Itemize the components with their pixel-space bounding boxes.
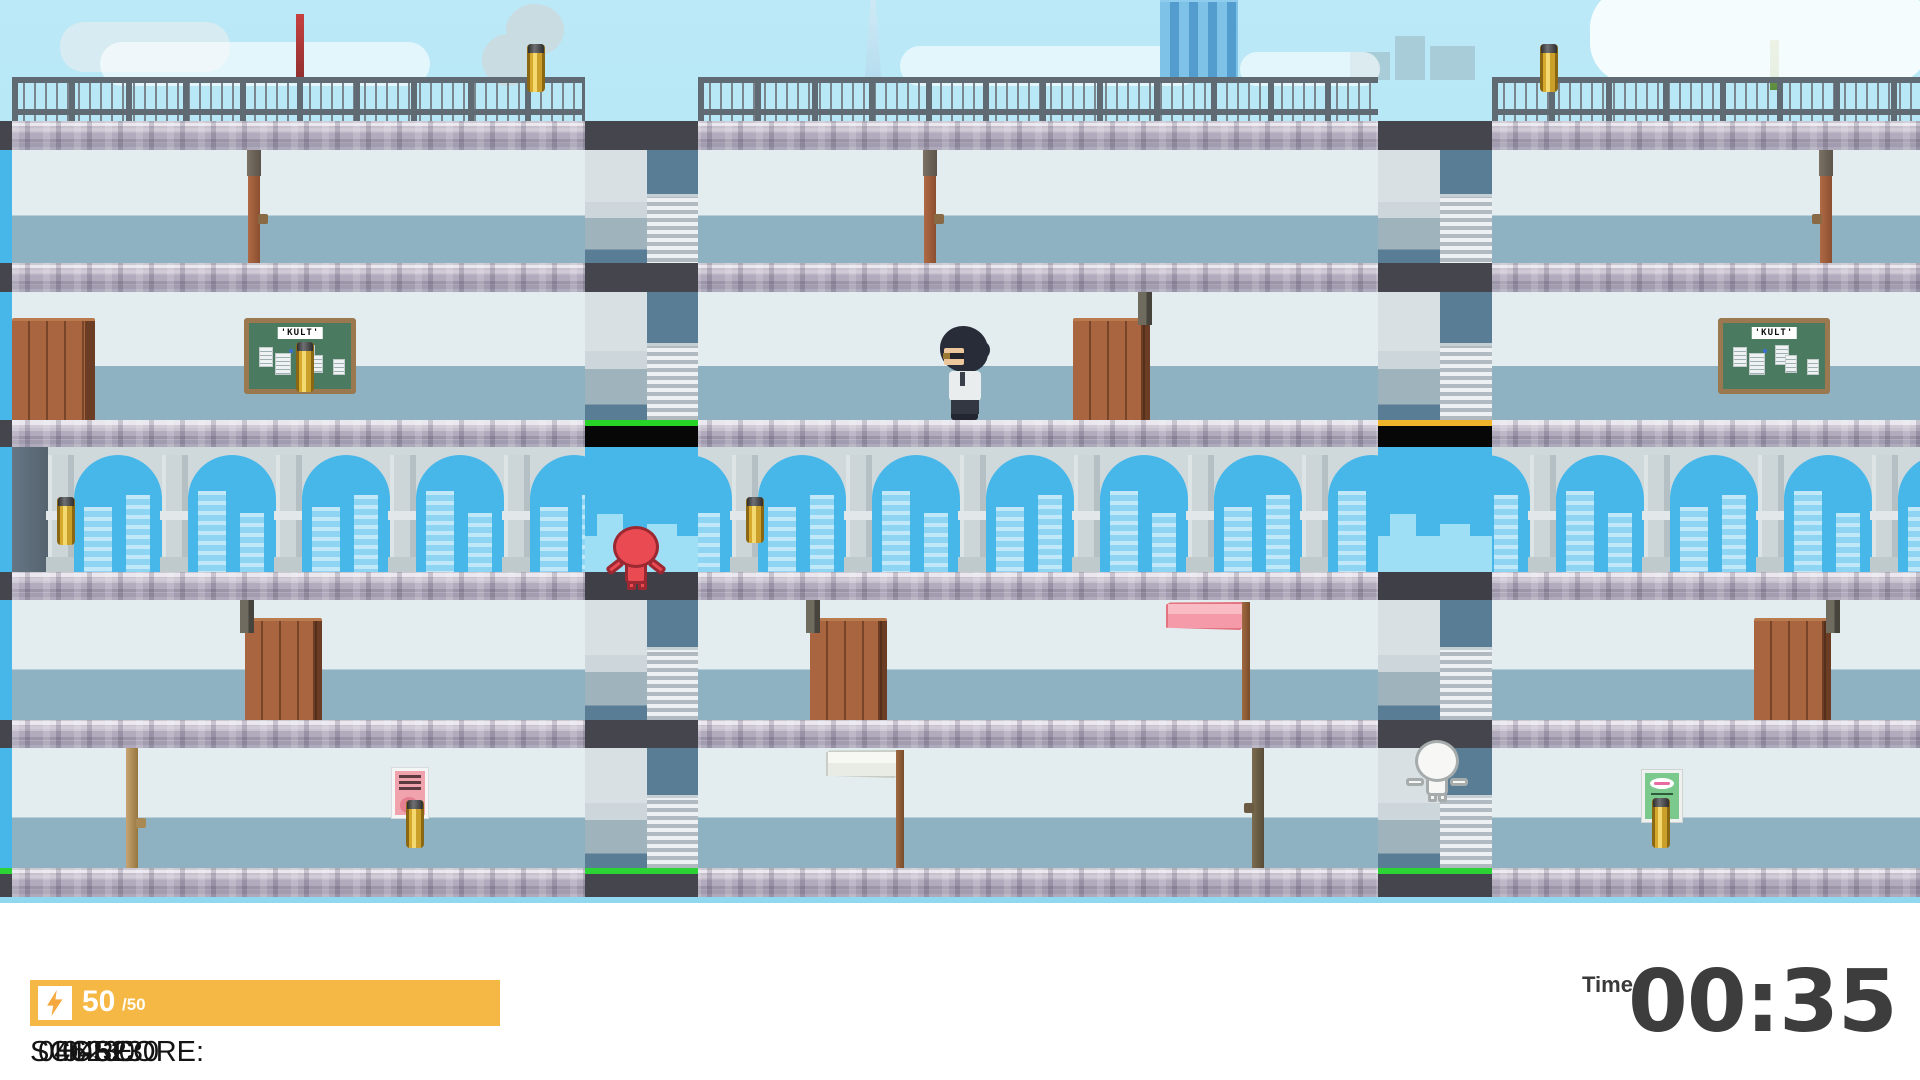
city-silhouette bbox=[1794, 491, 1822, 572]
sign-squiggle bbox=[1654, 782, 1670, 785]
bulletin-board-label: 'KULT' bbox=[1752, 327, 1797, 339]
pillar-base bbox=[274, 557, 304, 572]
city-silhouette bbox=[810, 495, 834, 572]
bulletin-board-label: 'KULT' bbox=[278, 327, 323, 339]
flag-pole bbox=[896, 750, 904, 868]
stairwell-upper-panel bbox=[1440, 150, 1492, 197]
shaft-ceiling-band bbox=[585, 121, 698, 150]
arch-opening bbox=[74, 455, 162, 572]
arm bbox=[1406, 778, 1424, 786]
wall-pole bbox=[1820, 150, 1832, 263]
gold-capsule-item bbox=[1540, 44, 1558, 92]
pillar-capital bbox=[1756, 511, 1786, 520]
gold-capsule-item bbox=[1652, 798, 1670, 848]
city-silhouette bbox=[354, 495, 378, 572]
door-mechanism-stub bbox=[240, 600, 254, 633]
arch-opening bbox=[1670, 455, 1758, 572]
city-silhouette bbox=[768, 507, 796, 572]
push-pin bbox=[289, 349, 293, 353]
shaft-open-sky bbox=[0, 600, 12, 720]
pillar-capital bbox=[388, 511, 418, 520]
pillar-capital bbox=[1870, 511, 1900, 520]
shaft-ground-band bbox=[1378, 874, 1492, 897]
wall-pole bbox=[924, 150, 936, 263]
wooden-door bbox=[1754, 618, 1831, 720]
pole-handle bbox=[258, 214, 268, 224]
shaft-floor-band bbox=[1378, 572, 1492, 600]
energy-current: 50 bbox=[82, 985, 115, 1019]
pillar-base bbox=[1186, 557, 1216, 572]
stone-floor-band bbox=[12, 720, 1920, 748]
shaft-floor-band bbox=[1378, 263, 1492, 292]
city-silhouette bbox=[1378, 536, 1492, 572]
arcade-pillar bbox=[1758, 455, 1784, 572]
pillar-capital bbox=[1528, 511, 1558, 520]
pillar-base bbox=[160, 557, 190, 572]
gold-capsule-item bbox=[527, 44, 545, 92]
city-silhouette bbox=[996, 507, 1024, 572]
stairwell-panel bbox=[585, 748, 647, 868]
arcade-pillar bbox=[276, 455, 302, 572]
stair-stripes bbox=[1440, 600, 1492, 720]
city-block bbox=[1395, 36, 1425, 80]
shaft-open-sky bbox=[0, 748, 12, 868]
pillar-base bbox=[46, 557, 76, 572]
white-blob-character bbox=[1412, 740, 1462, 802]
arcade-pillar bbox=[1530, 455, 1556, 572]
arcade-pillar bbox=[1074, 455, 1100, 572]
teacher-character bbox=[938, 326, 992, 420]
stair-stripes bbox=[647, 150, 698, 263]
bulletin-board: 'KULT' bbox=[1718, 318, 1830, 394]
city-silhouette bbox=[1680, 507, 1708, 572]
shaft-ground-band bbox=[585, 874, 698, 897]
arcade-pillar bbox=[960, 455, 986, 572]
pinned-paper bbox=[1749, 353, 1765, 375]
city-silhouette bbox=[882, 491, 910, 572]
gold-capsule-item bbox=[406, 800, 424, 848]
pillar-base bbox=[1300, 557, 1330, 572]
city-silhouette bbox=[240, 513, 264, 572]
stairwell-upper-panel bbox=[1440, 600, 1492, 650]
time-value: 00:35 bbox=[1628, 952, 1897, 1052]
gold-capsule-item bbox=[746, 497, 764, 543]
pillar-capital bbox=[274, 511, 304, 520]
poster-text-row bbox=[399, 787, 421, 790]
city-silhouette bbox=[1908, 507, 1920, 572]
city-silhouette bbox=[1566, 491, 1594, 572]
score-line: SCORE: 046230 HI-SCORE: 046230 bbox=[30, 1036, 62, 1069]
shaft-floor-band bbox=[0, 121, 12, 150]
glasses bbox=[943, 353, 964, 359]
pinned-paper bbox=[275, 353, 291, 375]
pinned-paper bbox=[333, 359, 345, 375]
city-silhouette bbox=[1266, 495, 1290, 572]
wooden-door bbox=[12, 318, 95, 420]
arcade-end-wall bbox=[12, 447, 48, 572]
pillar-base bbox=[502, 557, 532, 572]
shaft-open-sky bbox=[0, 292, 12, 420]
shaft-floor-band bbox=[0, 263, 12, 292]
pole-handle bbox=[136, 818, 146, 828]
pinned-paper bbox=[259, 347, 273, 367]
shaft-floor-band bbox=[0, 720, 12, 748]
arch-opening bbox=[872, 455, 960, 572]
city-silhouette bbox=[1608, 513, 1632, 572]
city-silhouette bbox=[1338, 491, 1366, 572]
stone-floor-band bbox=[12, 121, 1920, 150]
arcade-pillar bbox=[1872, 455, 1898, 572]
floor-interior-5 bbox=[12, 748, 1920, 868]
city-block bbox=[1430, 46, 1475, 80]
pillar-capital bbox=[1642, 511, 1672, 520]
pillar-base bbox=[1756, 557, 1786, 572]
shaft-floor-band bbox=[585, 263, 698, 292]
stairwell-upper-panel bbox=[1440, 292, 1492, 346]
stone-floor-band bbox=[12, 263, 1920, 292]
arcade-pillar bbox=[1188, 455, 1214, 572]
pole-handle bbox=[1812, 214, 1822, 224]
pinned-paper bbox=[1785, 355, 1797, 373]
arch-opening bbox=[1100, 455, 1188, 572]
sign-text-row bbox=[1651, 793, 1673, 795]
stair-stripes bbox=[647, 600, 698, 720]
city-silhouette bbox=[696, 513, 720, 572]
pillar-capital bbox=[502, 511, 532, 520]
pole-handle bbox=[934, 214, 944, 224]
pillar-base bbox=[388, 557, 418, 572]
flag-pole bbox=[1242, 602, 1250, 720]
pillar-capital bbox=[1300, 511, 1330, 520]
wall-pole bbox=[248, 150, 260, 263]
shaft-floor-band bbox=[585, 720, 698, 748]
arcade-pillar bbox=[1644, 455, 1670, 572]
city-silhouette bbox=[1038, 495, 1062, 572]
wooden-door bbox=[810, 618, 887, 720]
poster-text-row bbox=[399, 775, 421, 778]
shaft-open-sky bbox=[0, 447, 12, 572]
arcade-pillar bbox=[846, 455, 872, 572]
pole-cap bbox=[923, 150, 937, 176]
hiscore-value: 046230 bbox=[62, 1036, 159, 1069]
pillar-capital bbox=[1186, 511, 1216, 520]
pillar-capital bbox=[160, 511, 190, 520]
wooden-door bbox=[245, 618, 322, 720]
stair-stripes bbox=[647, 292, 698, 420]
lightning-bolt-glyph bbox=[44, 990, 66, 1016]
tie bbox=[960, 372, 965, 386]
cloud bbox=[1590, 0, 1920, 83]
arcade-pillar bbox=[504, 455, 530, 572]
city-silhouette bbox=[198, 491, 226, 572]
stair-stripes bbox=[1440, 292, 1492, 420]
city-silhouette bbox=[540, 507, 568, 572]
tower-silhouette bbox=[858, 0, 888, 80]
shaft-ceiling-band bbox=[1378, 121, 1492, 150]
shirt bbox=[949, 371, 981, 401]
city-silhouette bbox=[126, 495, 150, 572]
pole-cap bbox=[247, 150, 261, 176]
red-blob-character bbox=[610, 526, 662, 590]
door-mechanism-stub bbox=[806, 600, 820, 633]
pillar-base bbox=[1870, 557, 1900, 572]
shaft-ground-band bbox=[0, 874, 12, 897]
building-base-line bbox=[0, 897, 1920, 903]
arcade-pillar bbox=[1302, 455, 1328, 572]
arch-opening bbox=[302, 455, 390, 572]
city-silhouette bbox=[426, 491, 454, 572]
city-silhouette bbox=[1494, 495, 1518, 572]
lightning-bolt-icon bbox=[38, 986, 72, 1020]
pinned-paper bbox=[1733, 347, 1747, 367]
wall-pole bbox=[1252, 748, 1264, 868]
stone-floor-band bbox=[12, 420, 1920, 447]
gold-capsule-item bbox=[57, 497, 75, 545]
arm bbox=[1450, 778, 1468, 786]
arch-opening bbox=[1898, 455, 1920, 572]
pillar-capital bbox=[844, 511, 874, 520]
pillar-base bbox=[1642, 557, 1672, 572]
red-antenna bbox=[296, 14, 304, 82]
gold-capsule-item bbox=[296, 342, 314, 392]
wall-pole bbox=[126, 748, 138, 868]
poster-text-row bbox=[399, 781, 421, 784]
arch-opening bbox=[758, 455, 846, 572]
stone-floor-band bbox=[12, 868, 1920, 897]
push-pin bbox=[1763, 349, 1767, 353]
wooden-door bbox=[1073, 318, 1150, 420]
shaft-indicator-line bbox=[585, 420, 698, 426]
city-silhouette bbox=[1722, 495, 1746, 572]
pants bbox=[951, 400, 979, 414]
pink-flag bbox=[1166, 602, 1244, 630]
pole-handle bbox=[1244, 803, 1254, 813]
pillar-base bbox=[730, 557, 760, 572]
door-mechanism-stub bbox=[1826, 600, 1840, 633]
roof-railing bbox=[12, 77, 585, 121]
stairwell-panel bbox=[585, 292, 647, 420]
door-mechanism-stub bbox=[1138, 292, 1152, 325]
city-silhouette bbox=[1110, 491, 1138, 572]
city-silhouette bbox=[1390, 514, 1416, 536]
shaft-indicator-line bbox=[1378, 420, 1492, 426]
shaft-dark-gap bbox=[585, 426, 698, 447]
pole-cap bbox=[1819, 150, 1833, 176]
city-silhouette bbox=[312, 507, 340, 572]
time-label: Time bbox=[1582, 972, 1633, 998]
pillar-base bbox=[1072, 557, 1102, 572]
pillar-base bbox=[1528, 557, 1558, 572]
stairwell-panel bbox=[1378, 600, 1440, 720]
city-silhouette bbox=[468, 513, 492, 572]
pinned-paper bbox=[1807, 359, 1819, 375]
arcade-pillar bbox=[390, 455, 416, 572]
city-silhouette bbox=[84, 507, 112, 572]
pillar-base bbox=[958, 557, 988, 572]
pillar-capital bbox=[1072, 511, 1102, 520]
arch-opening bbox=[1784, 455, 1872, 572]
city-silhouette bbox=[1836, 513, 1860, 572]
arcade-colonnade-row bbox=[12, 447, 1920, 572]
edge-shaft-sliver bbox=[0, 121, 12, 897]
energy-bar: 50 /50 bbox=[30, 980, 500, 1026]
floor-interior-1 bbox=[12, 150, 1920, 263]
stairwell-upper-panel bbox=[647, 600, 698, 650]
roof-railing bbox=[698, 77, 1378, 121]
city-silhouette bbox=[924, 513, 948, 572]
shaft-dark-gap bbox=[1378, 426, 1492, 447]
stair-stripes bbox=[1440, 150, 1492, 263]
shaft-floor-band bbox=[0, 572, 12, 600]
pillar-capital bbox=[958, 511, 988, 520]
arch-opening bbox=[986, 455, 1074, 572]
shaft-open-sky bbox=[1378, 447, 1492, 572]
stairwell-panel bbox=[585, 150, 647, 263]
arch-opening bbox=[1214, 455, 1302, 572]
pole-shaft bbox=[126, 748, 138, 868]
head bbox=[1415, 740, 1459, 782]
arch-opening bbox=[188, 455, 276, 572]
stone-floor-band bbox=[12, 572, 1920, 600]
stairwell-panel bbox=[1378, 150, 1440, 263]
stairwell-panel bbox=[585, 600, 647, 720]
stair-stripes bbox=[647, 748, 698, 868]
city-silhouette bbox=[1224, 507, 1252, 572]
stairwell-shaft bbox=[585, 121, 698, 897]
glass-building bbox=[1160, 0, 1238, 80]
shaft-floor-band bbox=[0, 420, 12, 447]
pillar-base bbox=[844, 557, 874, 572]
shoes bbox=[951, 414, 978, 420]
stairwell-upper-panel bbox=[647, 748, 698, 798]
energy-max: /50 bbox=[122, 995, 146, 1015]
city-silhouette bbox=[1440, 524, 1470, 536]
stairwell-upper-panel bbox=[647, 292, 698, 346]
arch-opening bbox=[1556, 455, 1644, 572]
stairwell-upper-panel bbox=[647, 150, 698, 197]
stairwell-panel bbox=[1378, 292, 1440, 420]
shaft-open-sky bbox=[0, 150, 12, 263]
city-silhouette bbox=[1152, 513, 1176, 572]
head bbox=[613, 526, 659, 568]
arcade-pillar bbox=[162, 455, 188, 572]
game-viewport[interactable]: 50 /50 SCORE: 046230 HI-SCORE: 046230 Ti… bbox=[0, 0, 1920, 1080]
white-flag bbox=[826, 750, 898, 778]
arch-opening bbox=[416, 455, 504, 572]
